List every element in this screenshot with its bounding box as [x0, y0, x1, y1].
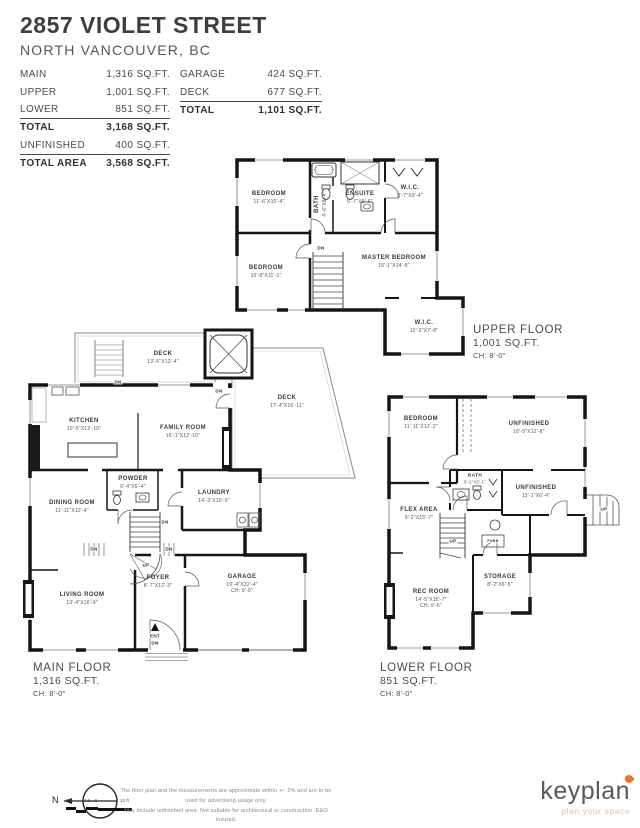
row-value: 677 SQ.FT.: [267, 87, 322, 98]
stair-direction-label: DN: [113, 380, 122, 385]
floor-area: 1,001 SQ.FT.: [473, 337, 563, 349]
room-dims: 15'-1"X14'-8": [362, 263, 426, 269]
stair-direction-label: DN: [214, 389, 223, 394]
row-value: 3,168 SQ.FT.: [106, 122, 170, 133]
room-dims: 6'-4"X5'-4": [118, 484, 147, 490]
scale-tick: 2.5: [84, 798, 90, 803]
stair-direction-label: DN: [89, 547, 98, 552]
scale-tick: 0 ft: [66, 798, 72, 803]
room-dims: 16'-1"X12'-10": [160, 433, 206, 439]
floor-name: LOWER FLOOR: [380, 662, 473, 674]
disclaimer-line1: The floor plan and the measurements are …: [118, 787, 334, 807]
north-label: N: [52, 795, 59, 805]
room-label: FLEX AREA 9'-2"X15'-7": [400, 507, 437, 521]
room-name: STORAGE: [484, 574, 516, 582]
upper-floor-caption: UPPER FLOOR 1,001 SQ.FT. CH: 8'-0": [473, 324, 563, 360]
room-name: GARAGE: [226, 574, 257, 582]
row-value: 3,568 SQ.FT.: [106, 158, 170, 169]
row-label: TOTAL: [20, 122, 54, 133]
row-label: UPPER: [20, 87, 56, 98]
room-ceiling-height: CH: 9'-0": [226, 588, 257, 594]
room-dims: 4'-6"X8'-4": [322, 191, 328, 216]
room-label: BATH 4'-6"X8'-4": [314, 191, 328, 216]
room-label: W.I.C. 8'-7"X9'-4": [397, 185, 422, 199]
room-dims: 10'-5"X12'-10": [67, 426, 101, 432]
room-dims: 17'-4"X16'-11": [270, 403, 304, 409]
room-name: UNFINISHED: [516, 485, 557, 493]
room-name: W.I.C.: [410, 320, 438, 328]
table-row: UPPER 1,001 SQ.FT.: [20, 83, 170, 100]
stair-direction-label: DN: [160, 520, 169, 525]
page-title: 2857 VIOLET STREET: [20, 12, 267, 39]
room-label: DECK 17'-4"X16'-11": [270, 395, 304, 409]
row-value: 851 SQ.FT.: [115, 104, 170, 115]
room-label: ENSUITE 6'-7"X9'-6": [346, 191, 375, 205]
room-dims: 11'-11"X12'-2": [404, 424, 438, 430]
room-label: BATH 8'-2"X5'-1": [464, 473, 486, 484]
lower-floor-plan: BEDROOM 11'-11"X12'-2" UNFINISHED 16'-5"…: [383, 391, 633, 657]
table-row: LOWER 851 SQ.FT.: [20, 101, 170, 119]
water-heater-icon: [490, 520, 500, 530]
room-dims: 11'-6"X10'-4": [252, 199, 286, 205]
room-label: LIVING ROOM 13'-4"X16'-9": [60, 592, 105, 606]
room-name: FOYER: [144, 575, 172, 583]
room-label: KITCHEN 10'-5"X12'-10": [67, 418, 101, 432]
stair-direction-label: DN: [316, 246, 325, 251]
stair-direction-label: UP: [449, 539, 458, 544]
room-ceiling-height: CH: 9'-6": [413, 603, 449, 609]
room-dims: 8'-7"X9'-4": [397, 193, 422, 199]
floor-plan-sheet: 2857 VIOLET STREET NORTH VANCOUVER, BC M…: [0, 0, 640, 828]
room-name: FLEX AREA: [400, 507, 437, 515]
room-name: ENSUITE: [346, 191, 375, 199]
room-label: DECK 13'-5"X12'-4": [147, 351, 178, 365]
toilet-icon: [113, 491, 121, 495]
floor-area: 1,316 SQ.FT.: [33, 675, 112, 687]
row-value: 400 SQ.FT.: [115, 140, 170, 151]
room-name: POWDER: [118, 476, 147, 484]
row-label: DECK: [180, 87, 209, 98]
room-dims: 16'-5"X12'-8": [509, 429, 550, 435]
room-name: BEDROOM: [249, 265, 283, 273]
row-label: GARAGE: [180, 69, 225, 80]
stair-direction-label: DN: [164, 547, 173, 552]
disclaimer: The floor plan and the measurements are …: [118, 787, 334, 826]
room-dims: 8'-2"X6'-5": [484, 582, 516, 588]
logo-text: keyplan: [540, 777, 630, 805]
room-label: UNFINISHED 13'-1"X6'-4": [516, 485, 557, 499]
hot-tub-icon: [205, 330, 252, 378]
room-name: FAMILY ROOM: [160, 425, 206, 433]
room-label: STORAGE 8'-2"X6'-5": [484, 574, 516, 588]
room-name: BEDROOM: [252, 191, 286, 199]
table-row: GARAGE 424 SQ.FT.: [180, 66, 322, 83]
header: 2857 VIOLET STREET NORTH VANCOUVER, BC: [20, 12, 267, 58]
fireplace-icon: [384, 583, 395, 619]
room-name: LIVING ROOM: [60, 592, 105, 600]
room-dims: 8'-7"X12'-3": [144, 583, 172, 589]
room-name: BATH: [314, 191, 322, 216]
stair-direction-label: DN: [150, 641, 159, 646]
toilet-icon: [473, 486, 481, 490]
floor-area: 851 SQ.FT.: [380, 675, 473, 687]
room-name: DINING ROOM: [49, 500, 95, 508]
room-dims: 13'-1"X6'-4": [516, 493, 557, 499]
floor-name: MAIN FLOOR: [33, 662, 112, 674]
room-label: UNFINISHED 16'-5"X12'-8": [509, 421, 550, 435]
room-dims: 10'-8"X11'-1": [249, 273, 283, 279]
room-name: BEDROOM: [404, 416, 438, 424]
area-table-left: MAIN 1,316 SQ.FT. UPPER 1,001 SQ.FT. LOW…: [20, 66, 170, 172]
brand: keyplan plan your space: [498, 779, 630, 816]
row-value: 424 SQ.FT.: [267, 69, 322, 80]
room-label: FOYER 8'-7"X12'-3": [144, 575, 172, 589]
entry-label: ENT: [149, 634, 161, 639]
room-label: GARAGE 19'-4"X22'-4" CH: 9'-0": [226, 574, 257, 594]
room-dims: 11'-11"X12'-4": [49, 508, 95, 514]
row-value: 1,101 SQ.FT.: [258, 105, 322, 116]
row-value: 1,001 SQ.FT.: [106, 87, 170, 98]
table-row: UNFINISHED 400 SQ.FT.: [20, 137, 170, 155]
row-label: TOTAL: [180, 105, 214, 116]
main-floor-plan: DECK 13'-5"X12'-4" DECK 17'-4"X16'-11" K…: [18, 328, 358, 662]
area-table-right: GARAGE 424 SQ.FT. DECK 677 SQ.FT. TOTAL …: [180, 66, 322, 119]
table-row: TOTAL 1,101 SQ.FT.: [180, 102, 322, 119]
room-name: MASTER BEDROOM: [362, 255, 426, 263]
room-name: DECK: [147, 351, 178, 359]
room-name: DECK: [270, 395, 304, 403]
room-name: UNFINISHED: [509, 421, 550, 429]
row-label: TOTAL AREA: [20, 158, 87, 169]
room-label: BEDROOM 11'-6"X10'-4": [252, 191, 286, 205]
room-dims: 6'-7"X9'-6": [346, 199, 375, 205]
lower-floor-caption: LOWER FLOOR 851 SQ.FT. CH: 8'-0": [380, 662, 473, 698]
room-dims: 14'-5"X15'-7": [413, 597, 449, 603]
row-label: UNFINISHED: [20, 140, 85, 151]
room-dims: 19'-4"X22'-4": [226, 582, 257, 588]
floor-ceiling-height: CH: 8'-0": [33, 689, 112, 698]
room-label: POWDER 6'-4"X5'-4": [118, 476, 147, 490]
room-label: BEDROOM 10'-8"X11'-1": [249, 265, 283, 279]
room-label: REC ROOM 14'-5"X15'-7" CH: 9'-6": [413, 589, 449, 609]
room-dims: 13'-5"X12'-4": [147, 359, 178, 365]
stair-direction-label: UP: [142, 563, 151, 568]
stair-direction-label: UP: [600, 507, 609, 512]
scale-tick: 5: [95, 798, 98, 803]
room-label: BEDROOM 11'-11"X12'-2": [404, 416, 438, 430]
room-label: MASTER BEDROOM 15'-1"X14'-8": [362, 255, 426, 269]
room-dims: 13'-4"X16'-9": [60, 600, 105, 606]
table-row: MAIN 1,316 SQ.FT.: [20, 66, 170, 83]
table-row: DECK 677 SQ.FT.: [180, 83, 322, 101]
room-name: LAUNDRY: [198, 490, 230, 498]
room-label: W.I.C. 12'-2"X7'-8": [410, 320, 438, 334]
main-floor-caption: MAIN FLOOR 1,316 SQ.FT. CH: 8'-0": [33, 662, 112, 698]
furnace-label: FURN: [486, 539, 499, 543]
room-label: LAUNDRY 14'-3"X10'-0": [198, 490, 230, 504]
floor-ceiling-height: CH: 8'-0": [380, 689, 473, 698]
floor-name: UPPER FLOOR: [473, 324, 563, 336]
floor-ceiling-height: CH: 8'-0": [473, 351, 563, 360]
disclaimer-line2: May include unfinished area. Not suitabl…: [118, 807, 334, 827]
row-label: MAIN: [20, 69, 47, 80]
keyplan-logo: keyplan: [540, 779, 630, 804]
room-dims: 8'-2"X5'-1": [464, 479, 486, 484]
row-value: 1,316 SQ.FT.: [106, 69, 170, 80]
fridge-icon: [30, 425, 40, 469]
room-dims: 14'-3"X10'-0": [198, 498, 230, 504]
room-dims: 12'-2"X7'-8": [410, 328, 438, 334]
brand-tagline: plan your space: [498, 807, 630, 816]
row-label: LOWER: [20, 104, 59, 115]
main-floor-drawing: [18, 328, 358, 662]
room-label: DINING ROOM 11'-11"X12'-4": [49, 500, 95, 514]
room-dims: 9'-2"X15'-7": [400, 515, 437, 521]
page-subtitle: NORTH VANCOUVER, BC: [20, 42, 267, 58]
table-row: TOTAL AREA 3,568 SQ.FT.: [20, 155, 170, 172]
table-row: TOTAL 3,168 SQ.FT.: [20, 119, 170, 136]
room-name: KITCHEN: [67, 418, 101, 426]
room-label: FAMILY ROOM 16'-1"X12'-10": [160, 425, 206, 439]
room-name: REC ROOM: [413, 589, 449, 597]
room-name: W.I.C.: [397, 185, 422, 193]
island-icon: [68, 443, 117, 457]
